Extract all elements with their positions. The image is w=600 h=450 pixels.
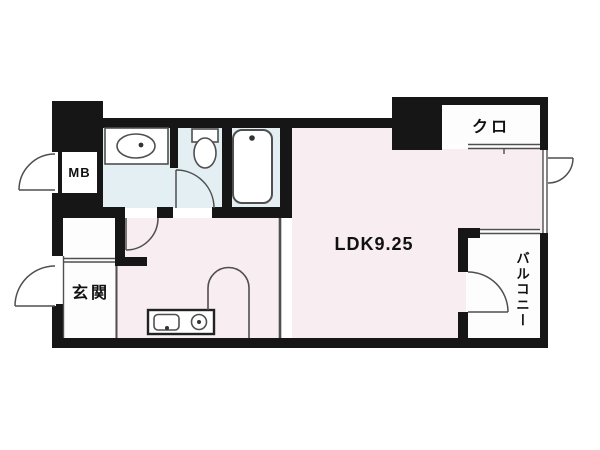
sink-drain-icon [165, 326, 169, 330]
pillar-top-left [52, 101, 103, 152]
bath-right-wall [280, 118, 292, 218]
balcony-right-wall [540, 233, 548, 338]
floor-plan-drawing [0, 0, 600, 450]
sanitary-bottom-wall-a [52, 207, 125, 218]
kitchen-counter [148, 310, 214, 334]
right-window-line [543, 150, 547, 233]
sanitary-bottom-wall-c [212, 207, 292, 218]
label-entrance: 玄関 [64, 274, 118, 308]
pillar-top-right [392, 97, 442, 150]
entrance-door-swing [15, 266, 55, 306]
washroom-toilet-divider [170, 128, 178, 168]
toilet-icon [192, 129, 218, 168]
toilet-bath-divider [222, 128, 232, 208]
left-wall-upper [52, 218, 63, 256]
balcony-left-wall-lower [458, 312, 468, 338]
label-ldk: LDK9.25 [309, 230, 439, 258]
balcony-left-wall-upper [458, 228, 468, 272]
right-side-door-swing [548, 158, 573, 183]
top-wall [100, 118, 393, 128]
sanitary-bottom-wall-b [157, 207, 173, 218]
entrance-wall-vertical [115, 218, 125, 257]
mb-door-swing [19, 154, 55, 190]
entrance-wall-horizontal [115, 257, 147, 266]
washbasin-icon [105, 128, 168, 164]
entrance-door-jamb-top [56, 252, 63, 256]
floor-plan: MB クロ 玄関 LDK9.25 バルコニー [0, 0, 600, 450]
bottom-wall [52, 338, 548, 348]
bathtub-icon [233, 130, 272, 203]
label-balcony: バルコニー [510, 242, 532, 338]
entrance-door-jamb-bottom [56, 304, 63, 308]
label-closet: クロ [442, 105, 540, 144]
closet-right-wall [540, 97, 548, 150]
label-meter-box: MB [60, 150, 99, 195]
